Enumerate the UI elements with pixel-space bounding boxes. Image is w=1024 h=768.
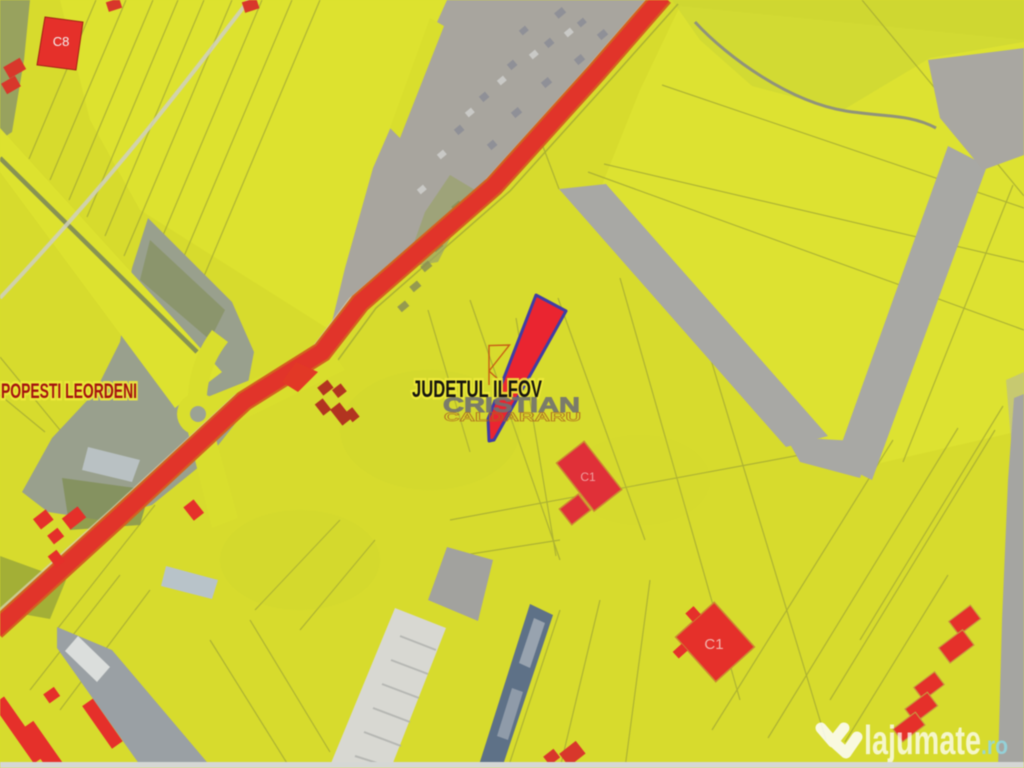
svg-text:POPESTI LEORDENI: POPESTI LEORDENI	[1, 379, 137, 403]
svg-text:C1: C1	[580, 470, 596, 484]
svg-text:C8: C8	[53, 34, 70, 49]
svg-text:lajumate: lajumate	[864, 717, 981, 763]
svg-text:CALDARARU: CALDARARU	[444, 412, 581, 424]
svg-text:.ro: .ro	[981, 732, 1008, 760]
svg-text:C1: C1	[704, 636, 723, 653]
